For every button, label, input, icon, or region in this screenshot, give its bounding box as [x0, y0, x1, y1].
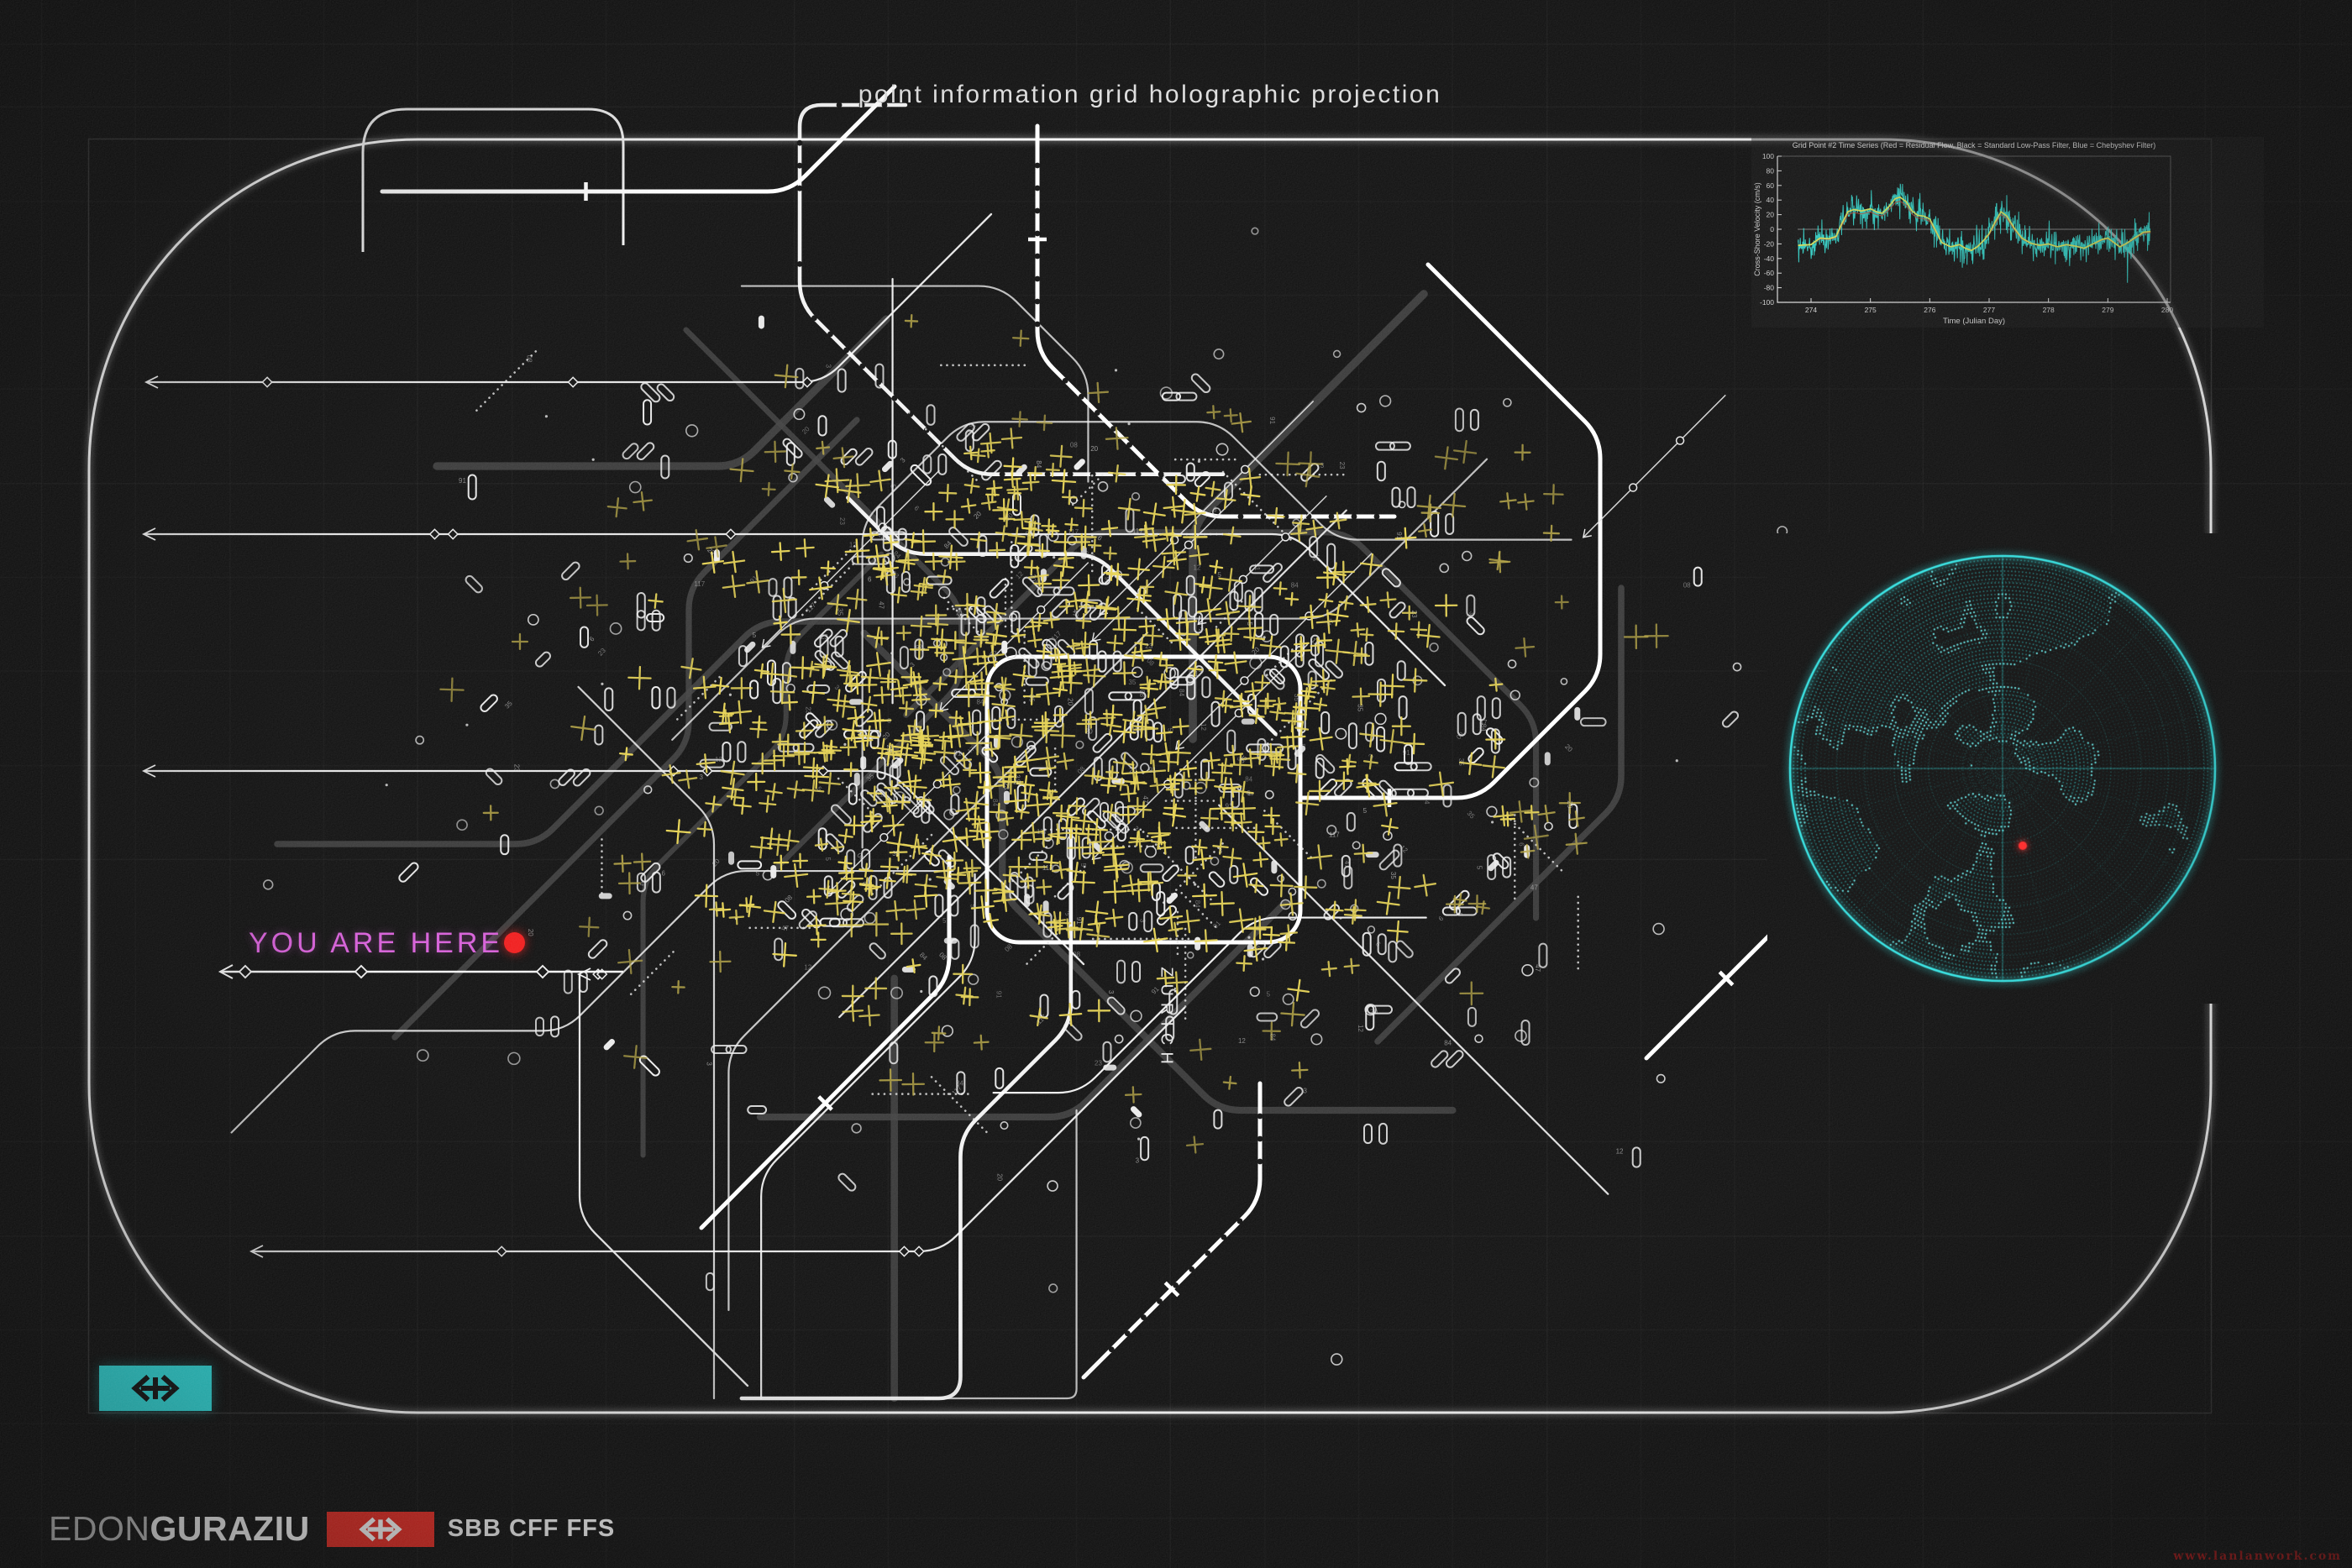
svg-text:47: 47 — [1071, 610, 1079, 617]
author-first: EDON — [49, 1509, 150, 1548]
svg-text:5: 5 — [1267, 990, 1271, 998]
svg-text:35: 35 — [1128, 679, 1136, 686]
chart-xlabel: Time (Julian Day) — [1943, 317, 2005, 326]
svg-text:84: 84 — [1035, 460, 1042, 468]
svg-text:3: 3 — [1138, 919, 1146, 923]
svg-text:12: 12 — [715, 756, 722, 763]
svg-text:6: 6 — [1016, 556, 1021, 564]
svg-text:84: 84 — [1299, 743, 1306, 751]
svg-text:3: 3 — [908, 661, 916, 669]
svg-text:12: 12 — [1193, 564, 1200, 571]
svg-text:91: 91 — [1075, 917, 1083, 925]
svg-text:08: 08 — [1683, 582, 1691, 590]
svg-text:20: 20 — [1013, 779, 1021, 786]
svg-text:91: 91 — [953, 749, 961, 757]
svg-text:47: 47 — [1343, 861, 1351, 868]
svg-text:91: 91 — [1403, 749, 1410, 757]
svg-text:60: 60 — [1767, 181, 1775, 190]
svg-text:3: 3 — [1014, 774, 1021, 779]
svg-text:35: 35 — [503, 700, 514, 711]
svg-text:23: 23 — [1338, 462, 1346, 469]
chart-title: Grid Point #2 Time Series (Red = Residua… — [1793, 141, 2155, 149]
svg-text:117: 117 — [1068, 528, 1079, 536]
svg-text:0: 0 — [1770, 225, 1774, 233]
svg-text:91: 91 — [1148, 766, 1156, 774]
svg-text:6: 6 — [1213, 506, 1217, 514]
svg-text:91: 91 — [995, 991, 1003, 999]
svg-text:5: 5 — [756, 870, 760, 878]
svg-text:84: 84 — [1194, 900, 1201, 908]
svg-text:08: 08 — [526, 355, 533, 363]
svg-text:6: 6 — [1517, 842, 1525, 847]
svg-text:5: 5 — [969, 904, 976, 908]
svg-text:12: 12 — [804, 963, 811, 971]
svg-text:3: 3 — [699, 774, 703, 781]
svg-text:117: 117 — [1131, 726, 1142, 734]
svg-text:35: 35 — [1457, 758, 1465, 766]
svg-text:20: 20 — [711, 857, 722, 868]
svg-text:20: 20 — [1029, 574, 1037, 581]
svg-text:274: 274 — [1805, 306, 1817, 314]
svg-text:5: 5 — [890, 485, 897, 489]
generated-map-features: 8484591083620117232039184236684123323584… — [144, 87, 1806, 1398]
svg-text:91: 91 — [459, 477, 466, 485]
holographic-projection-screen: 8484591083620117232039184236684123323584… — [0, 0, 2352, 1568]
svg-text:117: 117 — [1037, 828, 1047, 836]
svg-text:47: 47 — [640, 880, 648, 888]
svg-text:35: 35 — [1389, 872, 1397, 879]
sbb-logo-red — [327, 1512, 434, 1547]
svg-text:08: 08 — [1138, 690, 1146, 697]
svg-text:35: 35 — [1293, 694, 1300, 701]
svg-text:47: 47 — [1534, 964, 1541, 972]
svg-text:47: 47 — [877, 601, 885, 609]
svg-text:6: 6 — [887, 717, 891, 725]
svg-text:84: 84 — [1479, 724, 1487, 732]
svg-text:275: 275 — [1865, 306, 1877, 314]
svg-text:23: 23 — [838, 517, 846, 525]
author-last: GURAZIU — [150, 1509, 309, 1548]
svg-text:84: 84 — [956, 1080, 963, 1088]
svg-text:47: 47 — [1530, 884, 1538, 891]
svg-text:3: 3 — [1367, 752, 1375, 760]
svg-text:91: 91 — [1253, 563, 1261, 570]
svg-text:08: 08 — [1073, 951, 1080, 958]
svg-text:100: 100 — [1762, 152, 1774, 160]
svg-text:35: 35 — [1312, 554, 1320, 562]
svg-text:47: 47 — [990, 651, 997, 658]
svg-text:84: 84 — [991, 799, 999, 806]
svg-text:5: 5 — [824, 857, 832, 861]
svg-text:117: 117 — [1191, 670, 1202, 678]
svg-text:23: 23 — [967, 720, 974, 727]
svg-text:5: 5 — [1166, 728, 1173, 732]
svg-text:6: 6 — [1437, 915, 1446, 923]
svg-text:276: 276 — [1924, 306, 1935, 314]
svg-text:08: 08 — [1026, 531, 1033, 538]
footer-credits: EDONGURAZIU SBB CFF FFS — [49, 1509, 615, 1549]
svg-text:20: 20 — [1067, 698, 1074, 705]
svg-text:279: 279 — [2102, 306, 2113, 314]
svg-text:20: 20 — [972, 510, 983, 521]
svg-text:117: 117 — [694, 580, 705, 588]
svg-text:5: 5 — [1217, 571, 1221, 579]
svg-text:5: 5 — [942, 917, 947, 925]
sbb-double-arrow-icon — [115, 1372, 196, 1404]
watermark-url: www.lanlanwork.com — [2173, 1550, 2342, 1563]
svg-text:280: 280 — [2161, 306, 2173, 314]
svg-text:117: 117 — [1132, 527, 1143, 535]
svg-text:12: 12 — [1357, 1025, 1364, 1032]
svg-text:20: 20 — [1129, 767, 1137, 774]
svg-text:3: 3 — [1247, 792, 1254, 796]
svg-text:277: 277 — [1983, 306, 1995, 314]
svg-text:23: 23 — [805, 706, 812, 714]
svg-text:12: 12 — [1200, 723, 1207, 731]
svg-text:47: 47 — [1325, 617, 1336, 628]
svg-text:84: 84 — [1291, 582, 1299, 590]
svg-text:117: 117 — [876, 790, 887, 798]
svg-text:6: 6 — [978, 741, 985, 745]
svg-text:3: 3 — [824, 364, 832, 369]
svg-text:-40: -40 — [1764, 254, 1775, 263]
svg-text:23: 23 — [512, 764, 520, 772]
svg-text:35: 35 — [892, 850, 900, 857]
svg-text:117: 117 — [1042, 864, 1053, 872]
author-name: EDONGURAZIU — [49, 1509, 310, 1549]
svg-text:5: 5 — [984, 858, 988, 866]
svg-text:6: 6 — [868, 576, 872, 584]
svg-text:84: 84 — [918, 951, 929, 962]
svg-text:23: 23 — [1145, 642, 1152, 650]
chart-ylabel: Cross-Shore Velocity (cm/s) — [1753, 182, 1761, 276]
svg-text:08: 08 — [1070, 441, 1078, 448]
svg-text:5: 5 — [753, 632, 757, 639]
svg-text:5: 5 — [1363, 807, 1368, 815]
svg-text:35: 35 — [1027, 695, 1035, 702]
svg-text:23: 23 — [1095, 1059, 1102, 1067]
page-title: point information grid holographic proje… — [858, 81, 1442, 109]
svg-text:23: 23 — [821, 633, 828, 641]
svg-text:3: 3 — [1320, 462, 1325, 469]
svg-text:47: 47 — [1142, 795, 1149, 803]
svg-text:47: 47 — [781, 925, 789, 932]
globe-hologram — [1767, 533, 2238, 1004]
svg-text:84: 84 — [1245, 775, 1252, 783]
svg-text:3: 3 — [1107, 990, 1115, 994]
svg-text:20: 20 — [1563, 742, 1574, 753]
svg-text:40: 40 — [1767, 196, 1775, 204]
svg-text:23: 23 — [885, 745, 893, 753]
svg-text:3: 3 — [901, 753, 909, 757]
svg-text:20: 20 — [1090, 445, 1098, 453]
svg-text:84: 84 — [1423, 797, 1431, 805]
svg-text:23: 23 — [596, 647, 607, 658]
svg-text:-60: -60 — [1764, 269, 1775, 277]
svg-text:6: 6 — [913, 504, 921, 512]
sbb-double-arrow-icon — [344, 1515, 417, 1544]
svg-text:20: 20 — [1566, 800, 1573, 808]
svg-text:08: 08 — [1076, 764, 1087, 775]
svg-text:91: 91 — [1211, 919, 1222, 930]
brand-text: SBB CFF FFS — [448, 1515, 616, 1543]
svg-text:80: 80 — [1767, 166, 1775, 175]
svg-text:84: 84 — [1444, 1039, 1452, 1046]
svg-text:5: 5 — [1246, 621, 1253, 626]
svg-text:84: 84 — [976, 699, 984, 706]
svg-text:08: 08 — [1455, 730, 1466, 741]
svg-text:20: 20 — [881, 731, 892, 742]
svg-text:-80: -80 — [1764, 284, 1775, 292]
svg-text:12: 12 — [849, 542, 857, 549]
svg-text:20: 20 — [801, 425, 811, 436]
svg-text:84: 84 — [1268, 1033, 1276, 1041]
svg-text:84: 84 — [1178, 689, 1185, 696]
svg-text:20: 20 — [1370, 1008, 1378, 1015]
svg-text:20: 20 — [1767, 211, 1775, 219]
svg-text:3: 3 — [1303, 1087, 1307, 1094]
svg-text:20: 20 — [1085, 728, 1093, 736]
svg-text:35: 35 — [1466, 810, 1477, 821]
svg-text:23: 23 — [923, 797, 931, 805]
svg-text:12: 12 — [1238, 1037, 1246, 1045]
sbb-badge-cyan — [99, 1366, 212, 1411]
svg-text:08: 08 — [937, 951, 948, 962]
svg-text:12: 12 — [1616, 1148, 1624, 1156]
svg-text:5: 5 — [1079, 863, 1087, 868]
time-series-chart: Grid Point #2 Time Series (Red = Residua… — [1751, 137, 2264, 328]
svg-text:117: 117 — [1329, 831, 1340, 839]
city-label: ZÜRICH — [1157, 967, 1176, 1071]
svg-text:20: 20 — [527, 929, 534, 936]
you-are-here-leader — [220, 965, 623, 978]
svg-text:91: 91 — [1225, 802, 1232, 810]
svg-text:5: 5 — [1475, 866, 1483, 870]
svg-text:6: 6 — [661, 870, 665, 878]
svg-text:5: 5 — [885, 763, 892, 768]
svg-text:23: 23 — [1002, 782, 1010, 789]
svg-text:-100: -100 — [1760, 298, 1774, 307]
svg-text:35: 35 — [837, 608, 844, 616]
svg-text:08: 08 — [855, 852, 866, 863]
svg-text:3: 3 — [899, 456, 907, 464]
svg-text:91: 91 — [1268, 417, 1276, 424]
svg-text:35: 35 — [1356, 704, 1363, 711]
svg-text:08: 08 — [1003, 942, 1014, 953]
svg-text:91: 91 — [1103, 577, 1110, 585]
svg-text:6: 6 — [588, 635, 596, 643]
svg-text:5: 5 — [1456, 913, 1463, 917]
top-rounded-outline — [363, 109, 623, 252]
svg-text:23: 23 — [1410, 611, 1418, 618]
svg-text:3: 3 — [705, 1062, 712, 1066]
svg-text:20: 20 — [995, 1173, 1003, 1181]
svg-text:-20: -20 — [1764, 239, 1775, 248]
you-are-here-label: YOU ARE HERE — [249, 927, 503, 960]
svg-text:91: 91 — [1395, 532, 1403, 539]
svg-text:3: 3 — [1136, 1157, 1140, 1165]
svg-text:3: 3 — [1219, 847, 1223, 855]
you-are-here-dot — [504, 932, 525, 953]
svg-text:278: 278 — [2043, 306, 2055, 314]
